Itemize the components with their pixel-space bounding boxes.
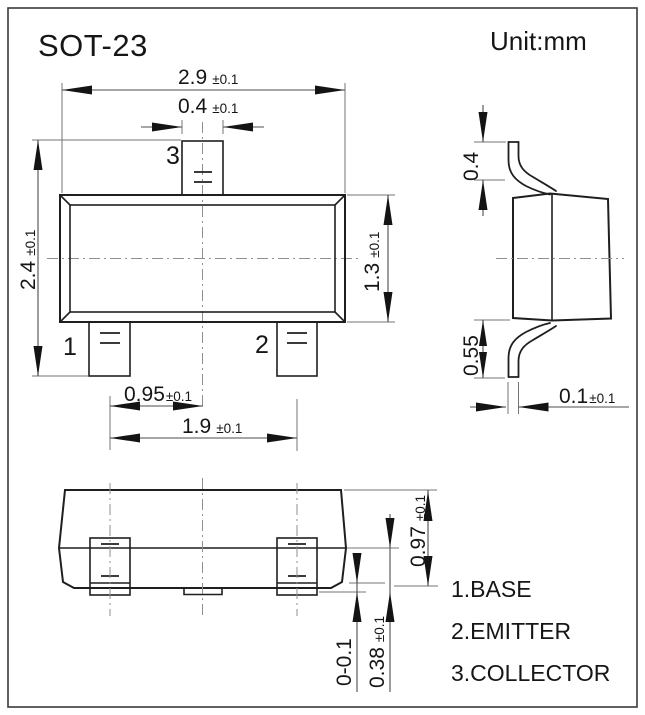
dim-label: 0.38±0.1 (366, 616, 389, 688)
pin-legend: 1.BASE 2.EMITTER 3.COLLECTOR (451, 576, 610, 686)
dim-label: 0.4±0.1 (178, 95, 238, 118)
dim-top-lead: 0.4 (460, 105, 506, 216)
dim-label: 1.3±0.1 (361, 232, 384, 292)
pin2-lead (277, 322, 317, 376)
unit-label: Unit:mm (490, 26, 587, 56)
legend-item-collector: 3.COLLECTOR (451, 660, 610, 686)
dim-lead-thickness: 0.1±0.1 (470, 382, 629, 414)
side-bottom-lead (509, 323, 557, 377)
drawing-page: SOT-23 Unit:mm 1 2 3 (0, 0, 645, 715)
bottom-view: 0.97±0.1 0-0.1 0.38±0.1 (59, 478, 438, 692)
side-top-lead (509, 142, 557, 195)
bevel-corner (335, 195, 345, 205)
bevel-corner (60, 312, 70, 322)
pin2-number: 2 (255, 331, 269, 359)
side-body (513, 194, 611, 321)
dim-overall-width: 2.9±0.1 (62, 66, 345, 193)
pin1-number: 1 (63, 333, 77, 361)
dim-label: 0-0.1 (333, 638, 356, 686)
dim-bottom-lead: 0.55 (460, 320, 510, 378)
dim-body-height: 1.3±0.1 (347, 195, 395, 322)
front-view: 1 2 3 2.9±0.1 0.4±0.1 (17, 66, 395, 451)
dim-label: 0.97±0.1 (407, 495, 430, 567)
dim-label: 2.4±0.1 (17, 230, 40, 290)
pin3-number: 3 (166, 142, 180, 170)
side-view: 0.4 0.55 0.1±0.1 (460, 105, 629, 414)
dim-label: 0.95±0.1 (124, 383, 192, 406)
dim-label: 2.9±0.1 (178, 66, 238, 89)
sot23-package-drawing: SOT-23 Unit:mm 1 2 3 (0, 0, 645, 715)
drawing-title: SOT-23 (38, 28, 148, 63)
legend-item-emitter: 2.EMITTER (451, 618, 571, 644)
dim-label: 1.9±0.1 (182, 415, 242, 438)
bevel-corner (60, 195, 70, 205)
dim-label: 0.1±0.1 (559, 385, 615, 408)
pin1-lead (89, 322, 130, 376)
bevel-corner (335, 312, 345, 322)
dim-label: 0.55 (460, 335, 483, 376)
page-border (8, 8, 637, 707)
dim-label: 0.4 (460, 151, 483, 181)
legend-item-base: 1.BASE (451, 576, 532, 602)
